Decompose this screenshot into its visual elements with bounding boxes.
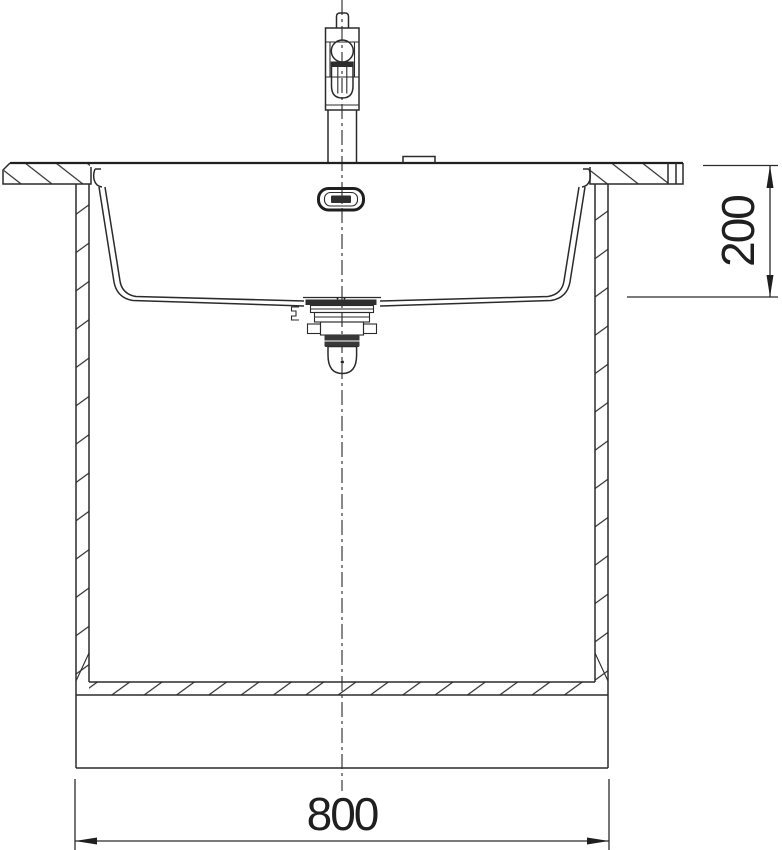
drain-side-bracket xyxy=(292,307,300,320)
dimension-depth: 200 xyxy=(627,166,778,298)
drain-assembly xyxy=(292,298,382,374)
sink-wall-right-inner xyxy=(380,187,579,301)
dimension-width-label: 800 xyxy=(307,788,378,840)
drawing-canvas: 800 200 xyxy=(0,0,782,850)
cabinet-bottom-shelf xyxy=(89,682,595,695)
arrowhead-down xyxy=(767,275,774,297)
sink-section-drawing: 800 200 xyxy=(0,0,782,850)
overflow-slot xyxy=(319,189,364,211)
dimension-width: 800 xyxy=(75,779,609,850)
drain-right-tab xyxy=(364,324,377,334)
drain-coupling-nut xyxy=(325,335,360,347)
dimension-depth-label: 200 xyxy=(712,196,764,267)
sink-wall-right-outer xyxy=(380,187,585,306)
countertop-right-section xyxy=(590,163,683,184)
countertop xyxy=(3,157,683,185)
sink-wall-left-outer xyxy=(99,187,304,306)
sink-rim-left xyxy=(94,169,102,187)
arrowhead-right xyxy=(587,838,609,845)
arrowhead-up xyxy=(767,166,774,189)
sink-wall-left-inner xyxy=(105,187,304,301)
cabinet-left-wall xyxy=(76,184,89,682)
countertop-left-section xyxy=(3,163,91,184)
drain-left-tab xyxy=(308,324,321,334)
arrowhead-left xyxy=(75,838,97,845)
cabinet-right-wall xyxy=(595,184,608,682)
sink-rim-right xyxy=(582,169,590,187)
